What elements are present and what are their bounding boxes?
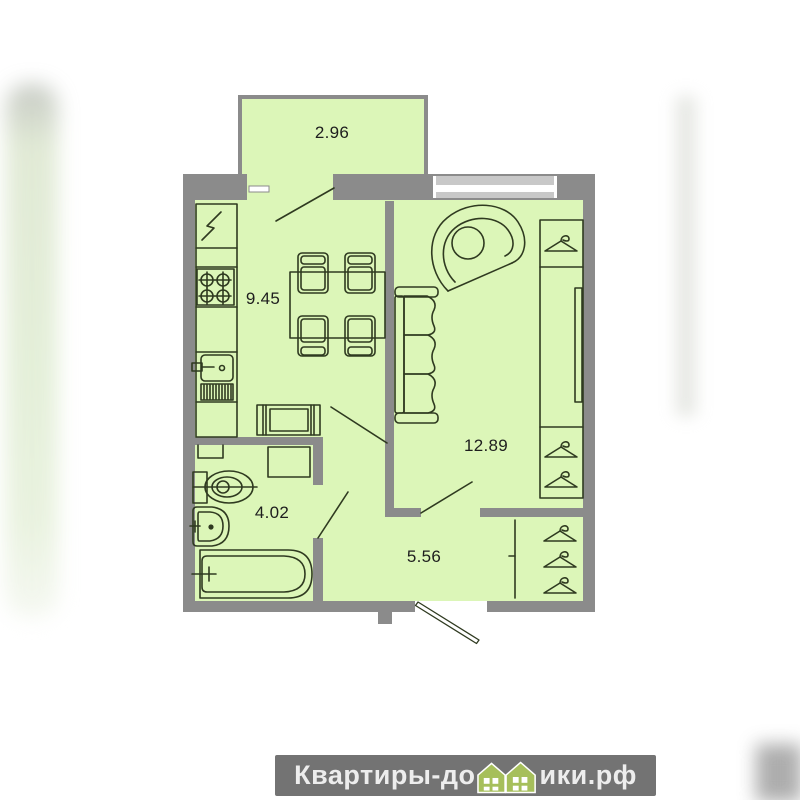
balcony-wall-right [424,95,428,174]
wall-bottom-right [487,601,595,612]
wall-entry-stub [378,612,392,624]
wall-living-bottom-left [385,508,421,517]
watermark-bar: Квартиры-до ики.рф [275,755,656,796]
balcony-wall-left [238,95,242,174]
watermark-text-suffix: ики.рф [540,760,637,791]
wall-living-bottom-right [480,508,595,517]
balcony-wall-top [238,95,428,99]
wall-bathroom-right-lower [313,538,323,601]
screenshot-canvas: 2.96 9.45 12.89 4.02 5.56 Квартиры-до ик… [0,0,800,800]
wall-bathroom-top [195,437,323,445]
wall-bathroom-right-upper [313,445,323,485]
houses-logo-icon [477,760,539,794]
room-label-hallway: 5.56 [407,547,441,567]
wall-bottom-left [183,601,415,612]
wall-right [583,174,595,612]
wall-top-b [333,174,433,200]
entrance-door-leaf [416,602,480,644]
balcony-door-threshold [249,186,269,192]
floor-plan [0,0,800,800]
room-label-kitchen: 9.45 [246,289,280,309]
watermark-text-prefix: Квартиры-до [294,760,475,791]
room-label-bathroom: 4.02 [255,503,289,523]
room-label-living-room: 12.89 [464,436,508,456]
room-label-balcony: 2.96 [315,123,349,143]
wall-kitchen-living [385,201,394,517]
wall-left [183,174,195,612]
living-room-window [433,174,557,200]
